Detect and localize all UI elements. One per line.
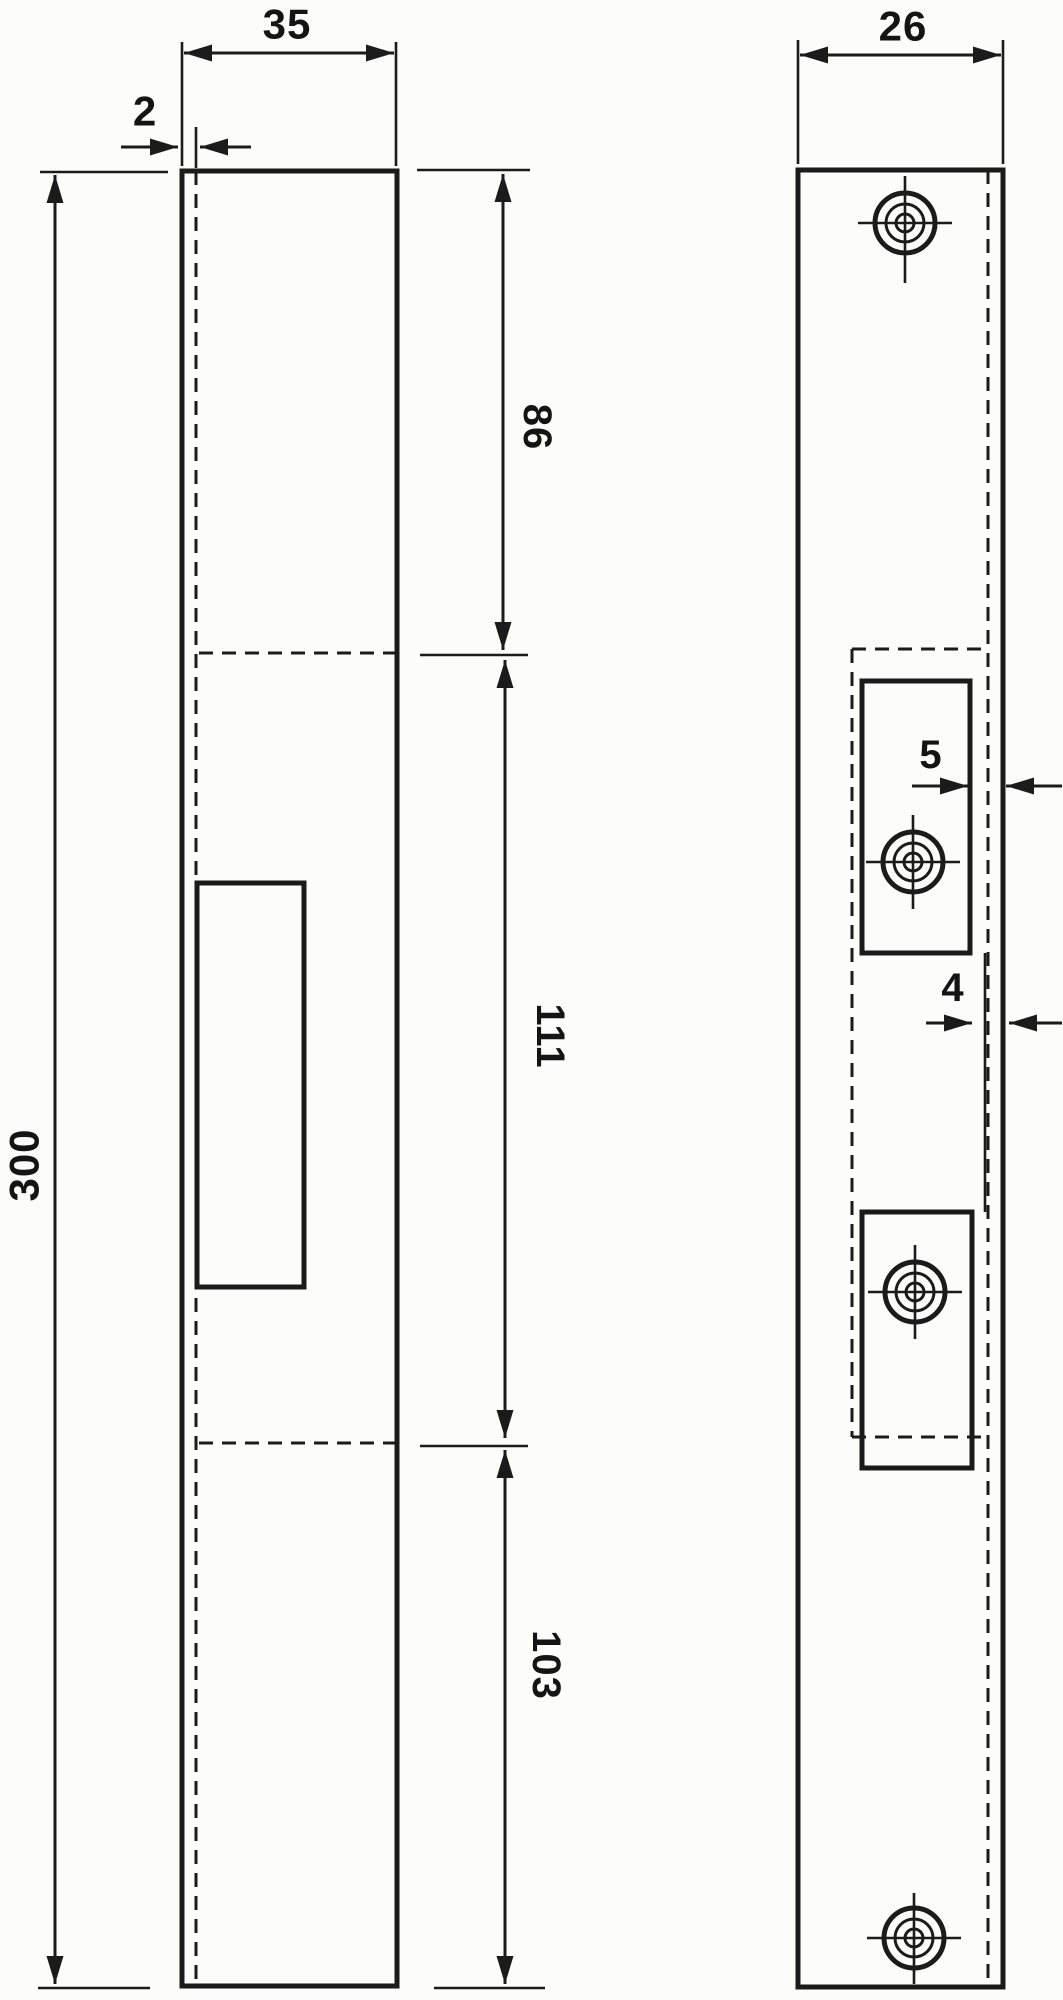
lower-keeper-opening	[862, 1212, 972, 1468]
plate-outline-side-view	[182, 171, 397, 1986]
right-view-front-face: 26 5 4	[798, 3, 1062, 1988]
dim-label-bottom-section: 103	[524, 1630, 568, 1700]
dim-label-top-section: 86	[515, 404, 559, 451]
dim-section-111: 111	[505, 660, 572, 1438]
dim-section-86: 86	[417, 170, 559, 655]
screw-hole-top	[858, 176, 952, 283]
drawing-page: 35 2 300 86 111	[0, 0, 1063, 2000]
dim-thickness-2: 2	[121, 88, 251, 169]
dim-label-edge-inset: 4	[941, 966, 964, 1010]
screw-hole-bottom	[867, 1893, 961, 1984]
left-view-side-profile: 35 2 300 86 111	[1, 1, 573, 1989]
screw-hole-upper-middle	[866, 815, 960, 909]
upper-keeper-opening	[862, 681, 970, 953]
dim-label-thickness: 2	[133, 88, 157, 135]
screw-hole-lower-middle	[868, 1245, 962, 1339]
dim-edge-inset-4: 4	[926, 966, 1062, 1023]
dim-label-middle-section: 111	[528, 1003, 572, 1068]
latch-pocket-outline	[197, 883, 304, 1287]
dim-height-300: 300	[1, 172, 169, 1988]
dim-width-35: 35	[182, 1, 396, 167]
dim-label-height: 300	[1, 1128, 48, 1201]
technical-drawing-canvas: 35 2 300 86 111	[0, 0, 1063, 2000]
dim-section-103: 103	[420, 1446, 568, 1988]
dim-label-keeper-inset: 5	[919, 733, 942, 777]
plate-outline-front-view	[798, 170, 1003, 1987]
dim-label-width: 35	[263, 1, 312, 48]
dim-label-width: 26	[879, 3, 928, 50]
dim-width-26: 26	[798, 3, 1003, 165]
